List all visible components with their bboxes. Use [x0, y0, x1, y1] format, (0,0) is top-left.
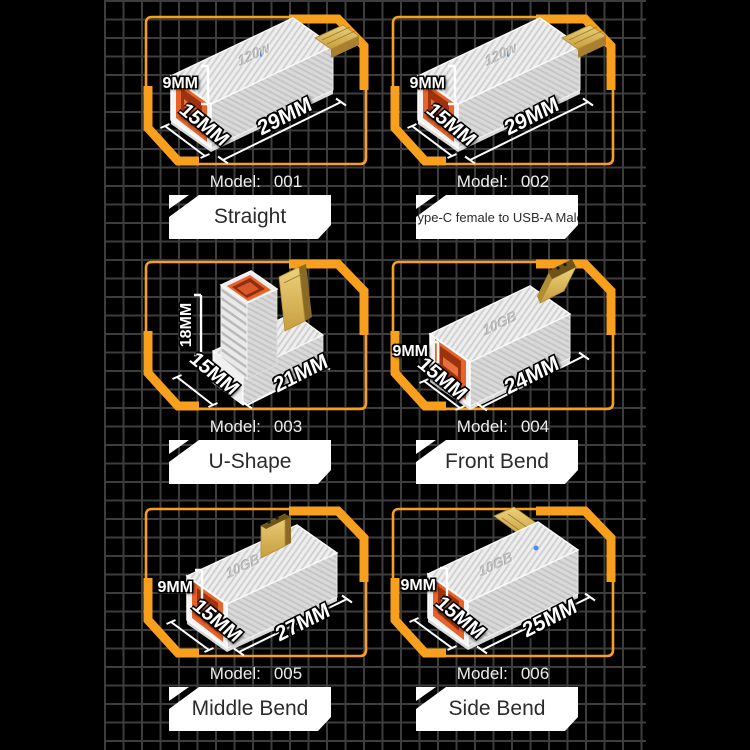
tag-plate: Front Bend	[416, 440, 578, 484]
product-panel-001: 120w 9MM 15MM 29MM Model: 001 Straight	[143, 14, 369, 254]
product-panel-005: 10GB 9MM 15MM 27MM Model: 005 Middle Ben…	[143, 506, 369, 746]
height-label: 18MM	[178, 295, 196, 355]
model-line: Model: 006	[390, 664, 616, 684]
model-label: Model:	[457, 417, 508, 437]
model-number: 004	[521, 417, 549, 437]
height-label: 9MM	[151, 579, 193, 597]
product-panel-006: 10GB 9MM 15MM 25MM Model: 006 Side Bend	[390, 506, 616, 746]
tag-plate: Straight	[169, 195, 331, 239]
height-label: 9MM	[394, 577, 436, 595]
model-number: 002	[521, 172, 549, 192]
model-line: Model: 002	[390, 172, 616, 192]
product-panel-004: 10GB 9MM 15MM 24MM Model: 004 Front Bend	[390, 259, 616, 499]
model-label: Model:	[457, 172, 508, 192]
model-number: 006	[521, 664, 549, 684]
height-label: 9MM	[399, 75, 445, 93]
model-number: 003	[274, 417, 302, 437]
model-label: Model:	[210, 664, 261, 684]
model-number: 005	[274, 664, 302, 684]
model-label: Model:	[457, 664, 508, 684]
tag-label: Side Bend	[449, 697, 546, 721]
model-label: Model:	[210, 417, 261, 437]
model-label: Model:	[210, 172, 261, 192]
height-label: 9MM	[152, 75, 198, 93]
model-number: 001	[274, 172, 302, 192]
tag-label: Straight	[214, 205, 286, 229]
tag-label: Middle Bend	[192, 697, 309, 721]
tag-plate: Middle Bend	[169, 687, 331, 731]
led-dot	[534, 546, 539, 551]
tag-plate: Type-C female to USB-A Male	[416, 195, 578, 239]
product-infographic: 120w 9MM 15MM 29MM Model: 001 Straight	[0, 0, 750, 750]
model-line: Model: 004	[390, 417, 616, 437]
u-shape-adapter-illustration	[143, 259, 369, 412]
tag-label: Type-C female to USB-A Male	[410, 210, 583, 225]
product-panel-003: 18MM 15MM 21MM Model: 003 U-Shape	[143, 259, 369, 499]
model-line: Model: 005	[143, 664, 369, 684]
model-line: Model: 001	[143, 172, 369, 192]
tag-plate: Side Bend	[416, 687, 578, 731]
tag-label: Front Bend	[445, 450, 549, 474]
model-line: Model: 003	[143, 417, 369, 437]
tag-plate: U-Shape	[169, 440, 331, 484]
tag-label: U-Shape	[209, 450, 292, 474]
product-panel-002: 120w 9MM 15MM 29MM Model: 002 Type-C fem…	[390, 14, 616, 254]
